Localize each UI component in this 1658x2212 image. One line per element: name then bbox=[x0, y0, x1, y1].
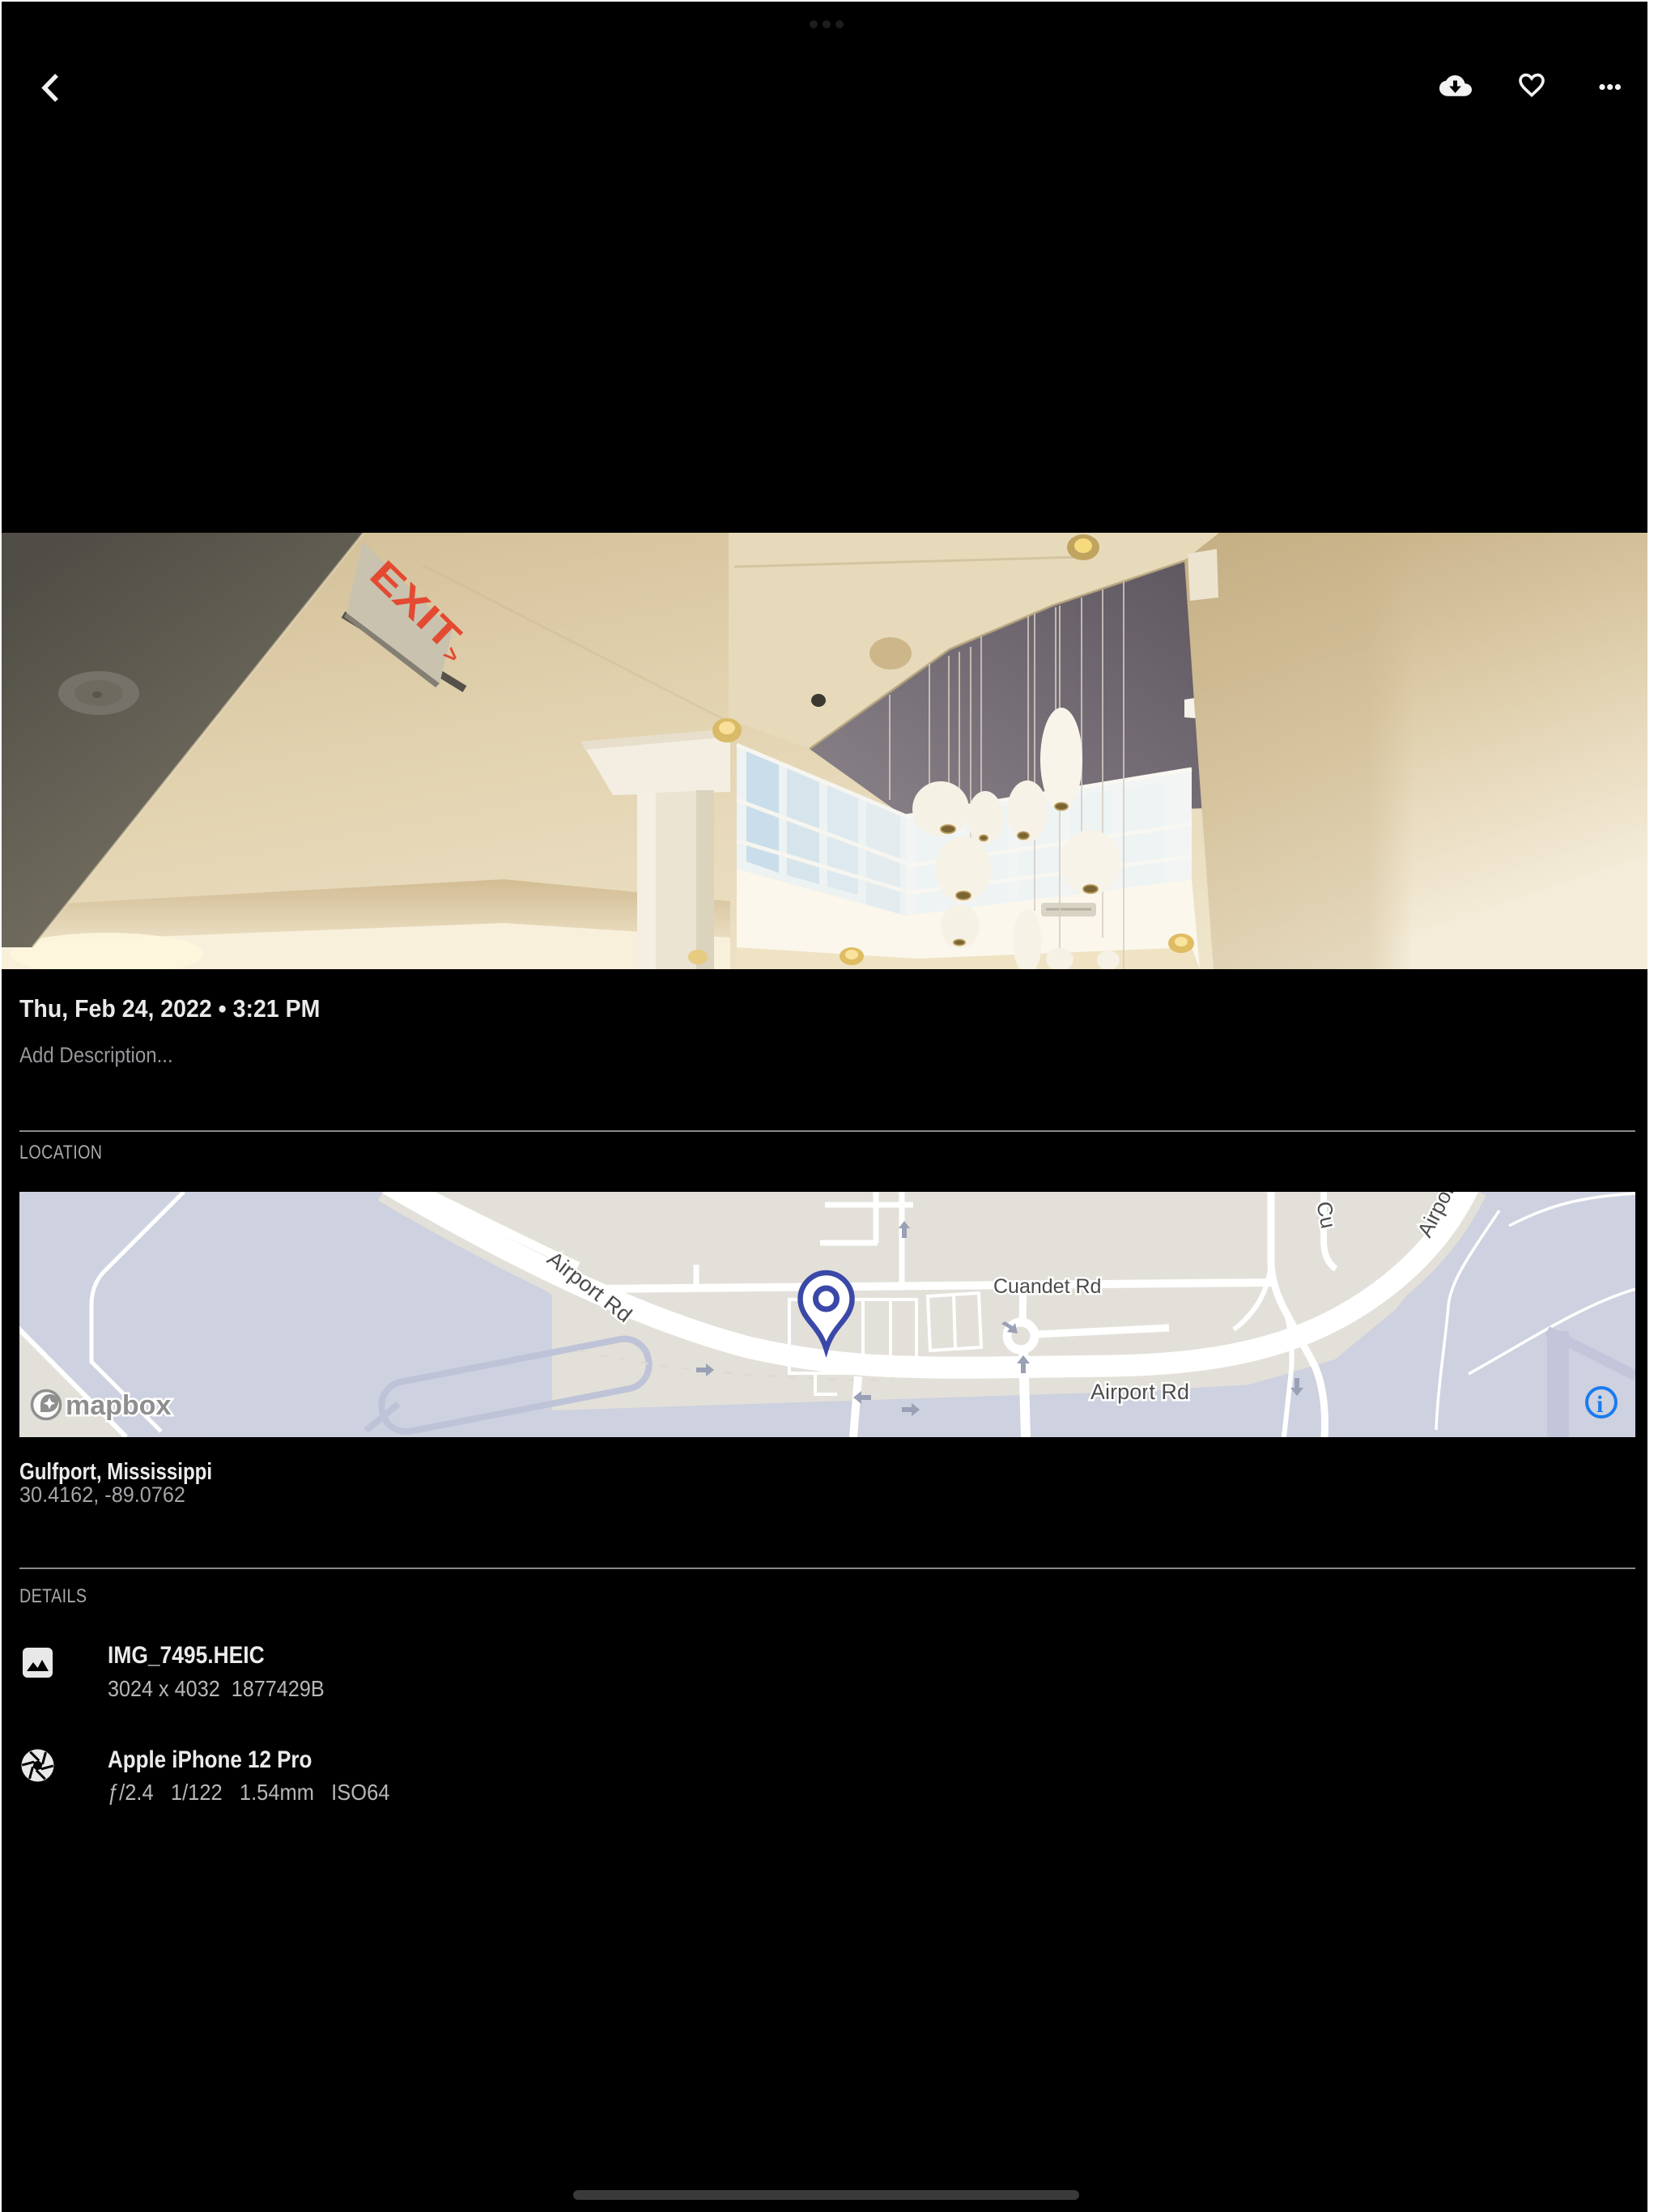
svg-text:Cuandet Rd: Cuandet Rd bbox=[993, 1275, 1101, 1298]
svg-text:Airport Rd: Airport Rd bbox=[1090, 1380, 1189, 1404]
svg-text:i: i bbox=[1596, 1391, 1603, 1418]
svg-text:mapbox: mapbox bbox=[66, 1390, 171, 1421]
